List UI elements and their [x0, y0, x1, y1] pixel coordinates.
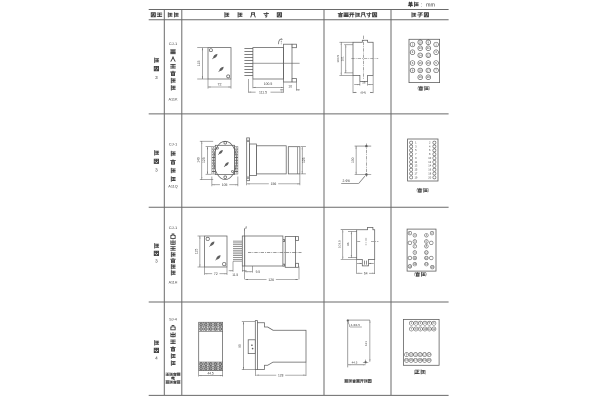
svg-text:1: 1 — [415, 141, 417, 145]
svg-text:5: 5 — [435, 61, 437, 65]
svg-text:115: 115 — [195, 249, 199, 255]
svg-text:CJ-1: CJ-1 — [169, 41, 178, 46]
svg-text:100.5: 100.5 — [264, 82, 273, 86]
svg-text:125: 125 — [202, 157, 206, 163]
svg-text:CJ-1: CJ-1 — [169, 141, 178, 146]
svg-text::: : — [421, 2, 422, 8]
svg-text:128: 128 — [278, 373, 284, 377]
svg-text:20: 20 — [427, 75, 431, 79]
svg-text:64: 64 — [364, 271, 368, 275]
svg-text:20: 20 — [428, 175, 431, 179]
svg-text:11: 11 — [427, 46, 430, 50]
svg-text:mm: mm — [426, 2, 435, 8]
svg-text:12: 12 — [428, 160, 431, 164]
svg-text:10: 10 — [419, 40, 423, 44]
svg-text:7: 7 — [435, 68, 437, 72]
svg-text:13: 13 — [414, 164, 417, 168]
svg-text:19: 19 — [419, 75, 423, 79]
svg-text:125: 125 — [302, 157, 306, 163]
svg-text:6: 6 — [412, 61, 414, 65]
svg-text:4: 4 — [412, 50, 414, 54]
svg-text:4-Φ4.5: 4-Φ4.5 — [351, 323, 361, 327]
svg-text:18: 18 — [428, 171, 431, 175]
svg-text:149: 149 — [196, 157, 200, 163]
svg-text:72: 72 — [214, 272, 218, 276]
svg-text:A11H: A11H — [169, 280, 178, 284]
svg-text:1: 1 — [435, 43, 437, 47]
svg-text:111.5: 111.5 — [259, 90, 267, 94]
svg-text:95: 95 — [238, 344, 242, 348]
svg-text:A11Q: A11Q — [168, 184, 177, 188]
svg-text:96: 96 — [346, 242, 350, 246]
svg-text:17: 17 — [427, 68, 431, 72]
svg-text:2: 2 — [429, 141, 431, 145]
svg-text:14: 14 — [419, 53, 423, 57]
svg-text:13: 13 — [419, 46, 423, 50]
svg-text:101: 101 — [341, 56, 345, 61]
svg-text:44.5: 44.5 — [207, 371, 213, 375]
svg-text:44.5: 44.5 — [352, 360, 358, 364]
svg-text:4: 4 — [155, 355, 158, 360]
svg-text:11.5: 11.5 — [232, 273, 238, 277]
svg-text:(64): (64) — [360, 91, 366, 95]
svg-text:8: 8 — [412, 68, 414, 72]
svg-text:8: 8 — [429, 152, 431, 156]
svg-text:SJ-4: SJ-4 — [169, 317, 177, 321]
svg-text:3: 3 — [435, 50, 437, 54]
svg-text:5: 5 — [415, 148, 417, 152]
svg-text:126: 126 — [268, 278, 274, 282]
svg-text:3: 3 — [155, 258, 158, 263]
svg-text:16: 16 — [362, 80, 366, 84]
svg-text:3: 3 — [415, 144, 417, 148]
svg-text:2: 2 — [412, 43, 414, 47]
svg-text:14: 14 — [428, 164, 431, 168]
svg-text:10: 10 — [428, 156, 431, 160]
svg-text:115: 115 — [197, 60, 201, 66]
svg-text:121: 121 — [364, 341, 368, 346]
svg-text:17: 17 — [414, 171, 417, 175]
svg-text:A11K: A11K — [168, 98, 177, 102]
svg-text:15: 15 — [414, 168, 417, 172]
svg-text:11: 11 — [415, 160, 418, 164]
svg-text:130: 130 — [351, 157, 355, 163]
svg-text:72: 72 — [218, 83, 222, 87]
svg-text:9.5: 9.5 — [256, 270, 261, 274]
svg-text:9: 9 — [427, 40, 429, 44]
svg-text:15: 15 — [427, 61, 431, 65]
svg-text:16: 16 — [428, 168, 431, 172]
svg-text:16: 16 — [419, 61, 423, 65]
svg-text:3: 3 — [155, 75, 158, 80]
svg-text:2-Φ6: 2-Φ6 — [342, 179, 350, 183]
svg-text:9: 9 — [415, 156, 417, 160]
svg-text:3: 3 — [155, 167, 158, 172]
svg-text:): ) — [425, 369, 427, 374]
svg-text:156: 156 — [271, 182, 277, 186]
svg-text:): ) — [428, 86, 430, 91]
svg-text:12: 12 — [427, 53, 431, 57]
svg-text:100.5: 100.5 — [336, 55, 340, 63]
svg-text:): ) — [425, 272, 427, 277]
svg-text:CJ-1: CJ-1 — [169, 225, 178, 230]
svg-text:103.5: 103.5 — [338, 240, 342, 248]
svg-text:16: 16 — [288, 85, 292, 89]
svg-text:): ) — [427, 188, 429, 193]
svg-text:19: 19 — [414, 175, 417, 179]
svg-text:105: 105 — [222, 183, 228, 187]
svg-text:4: 4 — [429, 144, 431, 148]
svg-text:7: 7 — [415, 152, 417, 156]
svg-text:6: 6 — [429, 148, 431, 152]
svg-text:18: 18 — [419, 68, 423, 72]
